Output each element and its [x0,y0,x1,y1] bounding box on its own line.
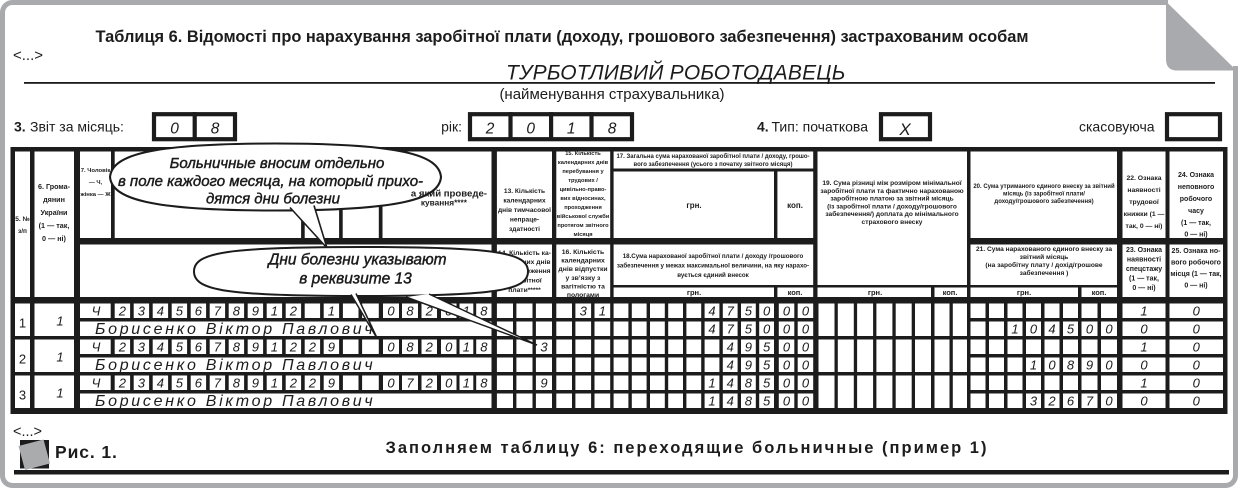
svg-text:1: 1 [271,340,278,355]
svg-text:0: 0 [783,376,791,391]
svg-text:7: 7 [214,340,222,355]
svg-text:4: 4 [727,340,734,355]
svg-text:Х: Х [898,120,911,139]
svg-text:Звіт за місяць:: Звіт за місяць: [30,119,124,135]
svg-text:вується єдиний внесок: вується єдиний внесок [677,272,749,279]
svg-text:0: 0 [1105,358,1113,373]
svg-text:0: 0 [1193,322,1201,337]
svg-text:0: 0 [445,340,453,355]
svg-text:0: 0 [526,121,535,138]
svg-text:21. Сума нарахованого єдиного: 21. Сума нарахованого єдиного внеску за [976,246,1112,253]
svg-text:наявності: наявності [1127,186,1160,194]
svg-text:1: 1 [1030,358,1037,373]
svg-text:робочого: робочого [1180,195,1212,203]
svg-text:у зв’язку з: у зв’язку з [566,275,602,282]
svg-text:з/п: з/п [18,228,27,235]
svg-text:2: 2 [1047,394,1056,409]
svg-text:0: 0 [170,121,179,138]
svg-text:4: 4 [157,376,164,391]
svg-text:0: 0 [802,358,810,373]
svg-text:Ч: Ч [92,304,101,319]
svg-text:8: 8 [233,304,241,319]
svg-text:6. Грома-: 6. Грома- [38,182,71,191]
svg-text:страхового внеску: страхового внеску [862,219,923,226]
svg-text:0: 0 [802,322,810,337]
svg-text:трудових /: трудових / [568,178,598,184]
svg-text:4: 4 [727,358,734,373]
svg-text:7: 7 [214,376,222,391]
svg-text:0: 0 [763,322,771,337]
svg-text:9: 9 [252,376,259,391]
svg-text:1: 1 [1011,322,1018,337]
svg-text:0: 0 [783,304,791,319]
svg-text:днів тимчасової: днів тимчасової [498,206,551,214]
svg-text:— Ч,: — Ч, [89,180,103,186]
svg-text:0: 0 [802,304,810,319]
svg-text:4: 4 [727,394,734,409]
svg-text:2: 2 [308,340,317,355]
svg-text:5: 5 [176,376,184,391]
svg-text:здатності: здатності [509,225,540,233]
svg-text:грн.: грн. [868,288,882,297]
svg-text:1: 1 [463,376,470,391]
svg-text:8: 8 [406,340,414,355]
svg-text:4: 4 [708,322,715,337]
svg-text:плати*****: плати***** [508,287,541,294]
svg-text:0: 0 [1086,322,1094,337]
svg-text:0: 0 [783,340,791,355]
svg-text:19. Сума різниці між розміром: 19. Сума різниці між розміром мінімально… [822,179,961,187]
svg-text:16. Кількість: 16. Кількість [562,248,604,256]
svg-text:2: 2 [289,304,298,319]
svg-text:15. Кількість: 15. Кількість [565,151,601,157]
svg-text:9: 9 [1086,358,1093,373]
svg-text:забезпечення у межах максимал: забезпечення у межах максимальної величи… [617,263,809,270]
svg-text:проходження: проходження [564,205,602,211]
svg-text:4: 4 [1048,322,1055,337]
svg-text:8: 8 [480,376,488,391]
svg-text:2: 2 [425,376,434,391]
svg-text:військової служби: військової служби [557,213,610,220]
svg-text:9: 9 [540,376,547,391]
svg-text:0 — ні): 0 — ні) [42,234,67,243]
svg-text:вих відносинах,: вих відносинах, [560,196,606,202]
svg-text:вого робочого: вого робочого [1171,259,1221,267]
svg-text:коп.: коп. [943,288,958,297]
svg-text:грн.: грн. [687,288,701,297]
svg-text:грн.: грн. [686,201,701,210]
svg-text:8: 8 [745,376,753,391]
svg-text:Таблиця 6. Відомості про нарах: Таблиця 6. Відомості про нарахування зар… [96,28,1029,46]
svg-text:3.: 3. [14,119,26,135]
svg-text:0: 0 [1193,394,1201,409]
svg-text:24. Ознака: 24. Ознака [1178,172,1214,179]
svg-text:так, 0 — ні): так, 0 — ні) [1126,222,1163,230]
svg-text:забезпечення ): забезпечення ) [1020,269,1069,277]
svg-text:1: 1 [463,340,470,355]
svg-text:13. Кількість: 13. Кількість [504,187,545,195]
svg-text:0: 0 [783,394,791,409]
svg-text:5: 5 [763,394,771,409]
svg-text:Ч: Ч [92,376,101,391]
svg-text:18.Сума нарахованої заробітної: 18.Сума нарахованої заробітної плати / д… [623,253,804,260]
svg-text:2: 2 [485,121,495,138]
svg-text:3: 3 [138,376,146,391]
svg-text:0: 0 [802,340,810,355]
svg-text:2: 2 [118,304,127,319]
svg-text:8: 8 [608,121,617,138]
svg-text:0: 0 [1140,322,1148,337]
svg-text:0: 0 [783,358,791,373]
svg-text:0: 0 [783,322,791,337]
svg-text:коп.: коп. [788,288,803,297]
svg-text:0 — ні): 0 — ні) [1184,231,1207,239]
svg-text:5: 5 [176,304,184,319]
svg-text:<...>: <...> [13,424,42,440]
svg-text:1: 1 [1140,376,1147,391]
svg-text:1: 1 [567,121,576,138]
svg-text:8: 8 [1067,358,1075,373]
svg-text:0: 0 [1140,394,1148,409]
svg-text:дятся дни болезни: дятся дни болезни [206,191,341,208]
svg-text:5: 5 [763,376,771,391]
svg-text:0: 0 [387,376,395,391]
svg-text:1: 1 [19,315,26,330]
svg-text:7: 7 [727,322,735,337]
svg-text:8: 8 [745,394,753,409]
svg-text:Заполняем таблицу 6: переходящ: Заполняем таблицу 6: переходящие больнич… [386,439,989,457]
svg-text:звітний місяць: звітний місяць [1020,253,1069,261]
svg-text:9: 9 [328,376,335,391]
svg-text:0: 0 [802,394,810,409]
svg-text:4: 4 [708,304,715,319]
svg-text:Борисенко Віктор Павлович: Борисенко Віктор Павлович [95,357,375,374]
svg-text:5: 5 [763,340,771,355]
svg-text:Больничные вносим отдельно: Больничные вносим отдельно [170,155,385,172]
svg-text:коп.: коп. [1092,288,1107,297]
svg-text:1: 1 [328,304,335,319]
svg-text:1: 1 [708,394,715,409]
svg-text:1: 1 [271,376,278,391]
svg-text:1: 1 [708,376,715,391]
svg-text:Тип: початкова: Тип: початкова [772,119,869,135]
svg-text:4: 4 [157,304,164,319]
svg-text:5: 5 [745,322,753,337]
svg-text:3: 3 [138,304,146,319]
svg-text:Рис. 1.: Рис. 1. [55,442,118,462]
svg-text:0 — ні): 0 — ні) [1132,284,1155,292]
svg-text:вого забезпечення (усього з по: вого забезпечення (усього з початку звіт… [634,161,793,168]
svg-text:0: 0 [1030,322,1038,337]
svg-text:3: 3 [1030,394,1038,409]
svg-text:4: 4 [157,340,164,355]
svg-text:5. №: 5. № [15,216,29,223]
svg-text:1: 1 [271,304,278,319]
svg-text:6: 6 [1067,394,1075,409]
svg-text:1: 1 [56,349,63,364]
svg-text:(1 — так,: (1 — так, [39,221,70,230]
svg-text:2: 2 [425,340,434,355]
svg-text:1: 1 [1140,340,1147,355]
svg-text:7. Чоловік: 7. Чоловік [81,168,111,174]
svg-text:25. Ознака но-: 25. Ознака но- [1172,248,1222,255]
svg-text:ТУРБОТЛИВИЙ РОБОТОДАВЕЦЬ: ТУРБОТЛИВИЙ РОБОТОДАВЕЦЬ [506,62,846,85]
svg-text:скасовуюча: скасовуюча [1079,119,1155,135]
svg-text:20. Сума утриманого єдиного вн: 20. Сума утриманого єдиного внеску за зв… [973,183,1115,190]
svg-text:коп.: коп. [787,201,803,210]
svg-text:9: 9 [252,340,259,355]
svg-text:2: 2 [118,376,127,391]
svg-text:0: 0 [763,304,771,319]
svg-text:1: 1 [599,304,606,319]
svg-text:спецстажу: спецстажу [1126,266,1162,273]
svg-text:3: 3 [580,304,588,319]
svg-text:2: 2 [308,376,317,391]
svg-text:1: 1 [56,313,63,328]
svg-text:8: 8 [233,376,241,391]
svg-text:дянин: дянин [43,195,65,204]
svg-text:0: 0 [1193,358,1201,373]
svg-text:6: 6 [195,340,203,355]
svg-text:5: 5 [763,358,771,373]
svg-text:0: 0 [1193,376,1201,391]
svg-text:5: 5 [745,304,753,319]
svg-text:перебування у: перебування у [562,168,604,175]
svg-text:5: 5 [176,340,184,355]
svg-text:в реквизите 13: в реквизите 13 [299,271,412,288]
svg-text:календарних: календарних [561,258,605,265]
svg-text:місця (1 — так,: місця (1 — так, [1170,270,1221,278]
svg-text:(1 — так,: (1 — так, [1181,220,1211,227]
svg-text:доходу/грошового забезпечення): доходу/грошового забезпечення) [994,198,1093,205]
svg-text:6: 6 [195,304,203,319]
svg-text:0: 0 [1140,358,1148,373]
svg-text:непраце-: непраце- [510,217,539,224]
svg-text:грн.: грн. [1017,288,1031,297]
svg-text:17. Загальна сума нарахованої: 17. Загальна сума нарахованої заробітної… [616,153,809,160]
svg-text:1: 1 [1140,304,1147,319]
svg-text:календарних: календарних [503,198,546,205]
svg-text:протягом звітного: протягом звітного [557,223,609,229]
svg-text:8: 8 [211,121,220,138]
svg-text:8: 8 [233,340,241,355]
svg-text:6: 6 [195,376,203,391]
svg-text:Ч: Ч [92,340,101,355]
svg-text:пологами: пологами [567,292,599,299]
svg-text:9: 9 [745,358,752,373]
svg-text:цивільно-право-: цивільно-право- [560,187,607,193]
svg-text:(найменування страхувальника): (найменування страхувальника) [499,86,724,103]
svg-text:(із заробітної плати / доходу/: (із заробітної плати / доходу/грошового [827,202,957,210]
svg-text:7: 7 [1086,394,1094,409]
svg-text:заробітною платою за звітний м: заробітною платою за звітний місяць [830,195,953,203]
svg-text:0: 0 [1105,322,1113,337]
svg-text:4.: 4. [757,119,769,135]
svg-text:0: 0 [387,340,395,355]
svg-text:рік:: рік: [441,119,462,135]
svg-text:0: 0 [1193,340,1201,355]
svg-text:22. Ознака: 22. Ознака [1126,175,1161,182]
svg-text:часу: часу [1188,208,1204,215]
svg-text:трудової: трудової [1129,199,1160,206]
svg-text:9: 9 [328,340,335,355]
svg-text:днів відпустки: днів відпустки [558,265,607,273]
svg-text:Дни болезни указывают: Дни болезни указывают [266,252,446,269]
svg-text:7: 7 [727,304,735,319]
svg-text:3: 3 [138,340,146,355]
svg-text:0: 0 [387,304,395,319]
svg-text:2: 2 [19,351,26,366]
svg-text:0: 0 [1048,358,1056,373]
svg-text:0: 0 [1105,394,1113,409]
svg-text:кування****: кування**** [421,198,468,208]
svg-text:8: 8 [406,304,414,319]
svg-text:5: 5 [1067,322,1075,337]
svg-text:місяць (із заробітної плати/: місяць (із заробітної плати/ [1003,191,1085,198]
svg-text:23. Ознака: 23. Ознака [1126,247,1162,254]
svg-text:2: 2 [289,340,298,355]
svg-text:Борисенко Віктор Павлович: Борисенко Віктор Павлович [95,321,375,338]
svg-text:8: 8 [480,340,488,355]
svg-text:7: 7 [406,376,414,391]
svg-text:3: 3 [19,387,26,402]
svg-text:8: 8 [480,304,488,319]
svg-text:9: 9 [252,304,259,319]
svg-text:(1 — так,: (1 — так, [1129,276,1159,283]
svg-text:забезпечення/) доплата до міні: забезпечення/) доплата до мінімального [825,210,958,218]
svg-text:2: 2 [118,340,127,355]
svg-text:книжки (1 —: книжки (1 — [1124,211,1165,218]
svg-text:9: 9 [745,340,752,355]
svg-text:наявності: наявності [1127,256,1161,264]
svg-text:календарних днів: календарних днів [558,160,609,166]
svg-text:жінка — Ж: жінка — Ж [79,192,111,198]
svg-text:в поле каждого месяца, на кото: в поле каждого месяца, на который прихо- [118,173,423,190]
svg-text:місяця: місяця [573,232,592,238]
svg-text:0: 0 [445,376,453,391]
svg-text:3: 3 [540,340,548,355]
svg-text:7: 7 [214,304,222,319]
svg-text:0: 0 [1193,304,1201,319]
svg-text:4: 4 [727,376,734,391]
svg-text:Борисенко Віктор Павлович: Борисенко Віктор Павлович [95,393,375,410]
svg-text:заробітної плати та фактично н: заробітної плати та фактично нарахованою [820,187,964,195]
svg-text:вагітністю та: вагітністю та [561,282,605,290]
svg-text:0 — ні): 0 — ні) [1184,282,1207,290]
svg-text:неповного: неповного [1178,184,1215,191]
svg-text:<...>: <...> [13,47,43,64]
svg-text:2: 2 [289,376,298,391]
svg-text:0: 0 [802,376,810,391]
svg-text:України: України [41,208,68,217]
svg-text:(на заробітну плату / дохід/гр: (на заробітну плату / дохід/грошове [985,261,1102,269]
svg-text:1: 1 [56,385,63,400]
